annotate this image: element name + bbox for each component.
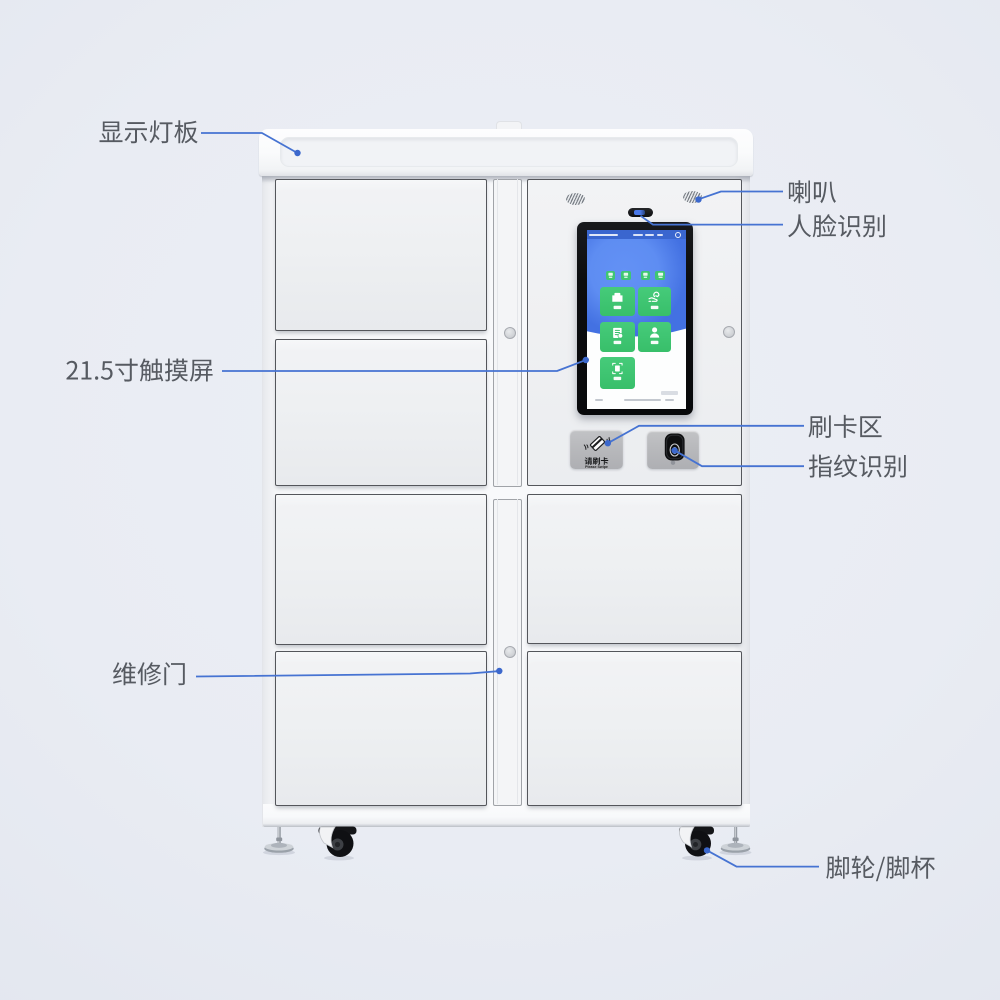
svg-text:Please Swipe: Please Swipe	[585, 465, 608, 469]
